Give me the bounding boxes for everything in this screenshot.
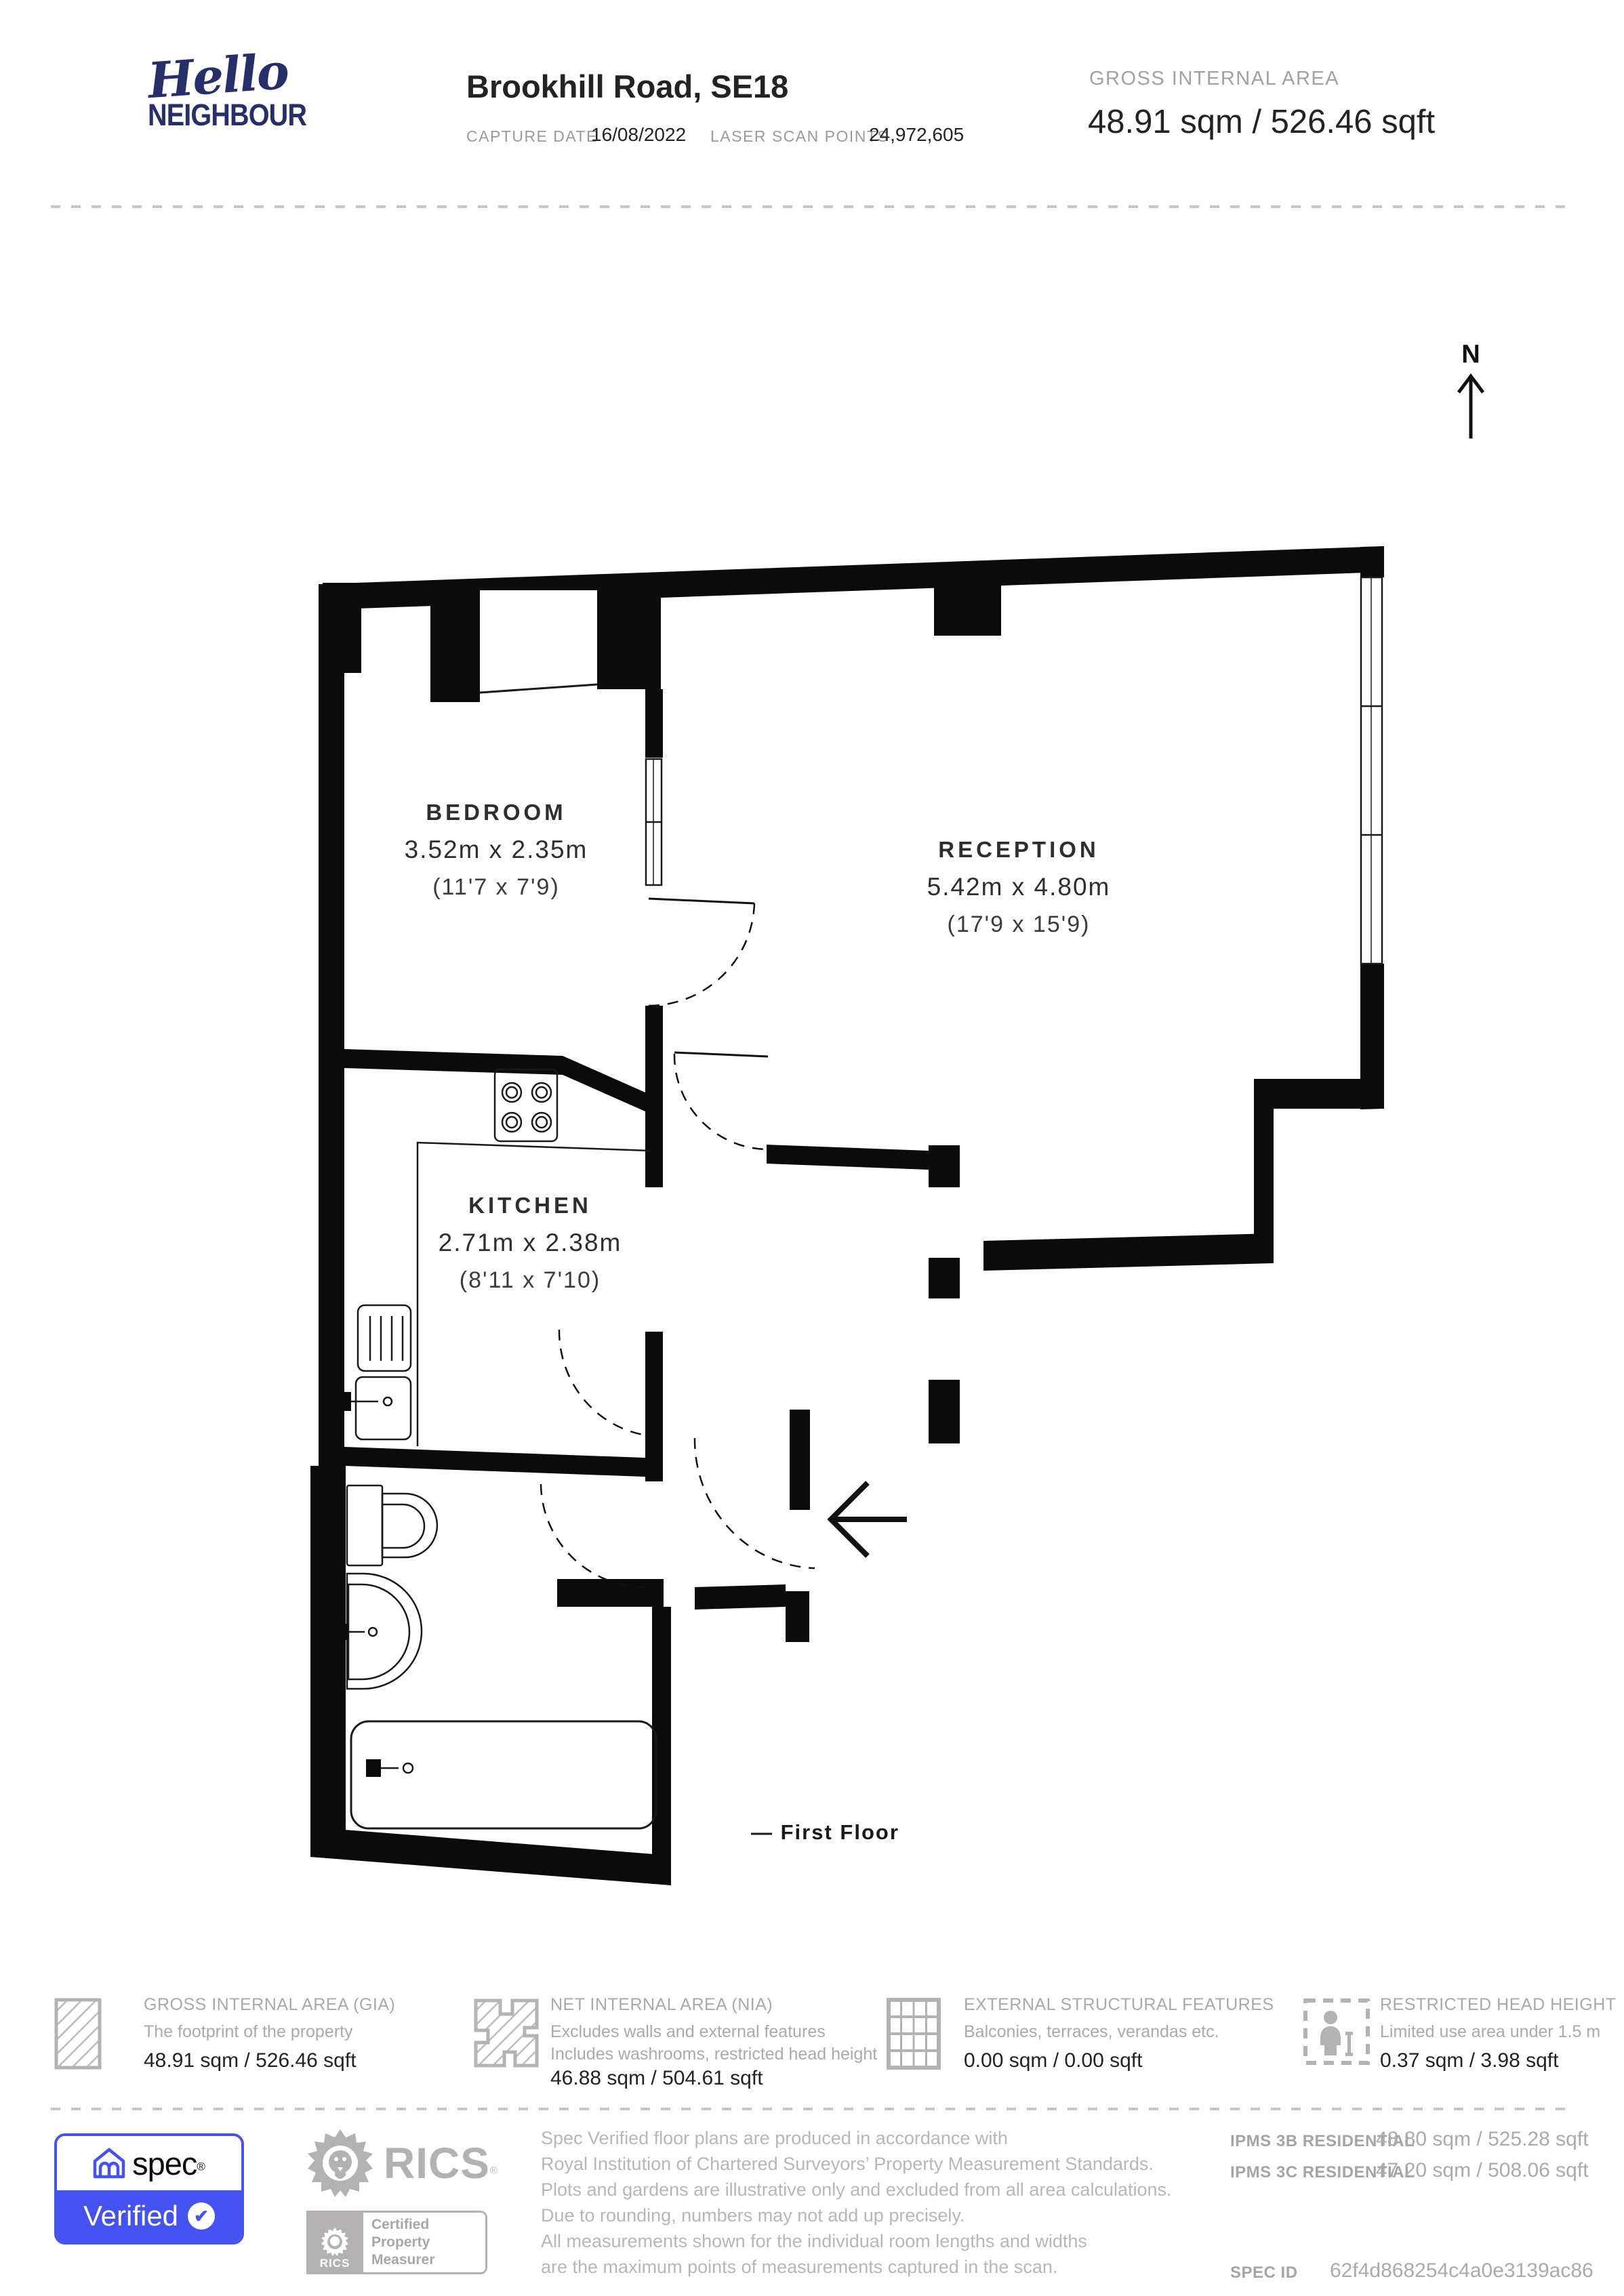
- kitchen-door-arc: [559, 1330, 647, 1435]
- wall-bath-bottom: [310, 1827, 671, 1885]
- bedroom-door-arc: [649, 903, 754, 1006]
- disclaimer-line: Plots and gardens are illustrative only …: [541, 2177, 1172, 2202]
- bedroom-glazed-panel: [643, 758, 665, 886]
- bedroom-imperial: (11'7 x 7'9): [432, 874, 560, 900]
- hob-icon: [495, 1069, 557, 1141]
- rics-certified-line2: Property: [371, 2234, 485, 2251]
- capture-date-label: CAPTURE DATE: [466, 127, 598, 146]
- disclaimer-text: Spec Verified floor plans are produced i…: [541, 2125, 1172, 2280]
- legend-external-title: EXTERNAL STRUCTURAL FEATURES: [964, 1995, 1274, 2015]
- wall-hall-bottom-west: [557, 1579, 664, 1607]
- rics-certified-line3: Measurer: [371, 2251, 485, 2269]
- rics-logo: RICS®: [306, 2128, 498, 2198]
- wall-top: [319, 546, 1384, 610]
- floor-plan: BEDROOM 3.52m x 2.35m (11'7 x 7'9) RECEP…: [291, 501, 1417, 1925]
- disclaimer-line: are the maximum points of measurements c…: [541, 2254, 1172, 2280]
- basin-icon: [333, 1574, 422, 1689]
- reception-door-leaf: [674, 1052, 768, 1057]
- rics-certified-badge: RICS Certified Property Measurer: [306, 2211, 487, 2274]
- disclaimer-line: Royal Institution of Chartered Surveyors…: [541, 2151, 1172, 2177]
- wall-pier-reception: [934, 571, 1001, 636]
- legend-external-value: 0.00 sqm / 0.00 sqft: [964, 2049, 1142, 2072]
- spec-house-icon: [93, 2148, 125, 2179]
- legend-nia-value: 46.88 sqm / 504.61 sqft: [550, 2067, 763, 2090]
- legend-nia-title: NET INTERNAL AREA (NIA): [550, 1995, 773, 2015]
- wall-bath-east: [652, 1607, 671, 1884]
- legend-rhh-desc: Limited use area under 1.5 m: [1380, 2021, 1600, 2043]
- kitchen-metric: 2.71m x 2.38m: [439, 1229, 622, 1256]
- toilet-icon: [347, 1485, 437, 1565]
- brand-logo-neighbour: NEIGHBOUR: [148, 98, 306, 133]
- bedroom-metric: 3.52m x 2.35m: [405, 836, 588, 863]
- footer-divider: [51, 2108, 1575, 2110]
- laser-scan-label: LASER SCAN POINTS: [710, 127, 889, 146]
- laser-scan-value: 24,972,605: [869, 124, 964, 146]
- spec-id-label: SPEC ID: [1230, 2263, 1298, 2282]
- kitchen-imperial: (8'11 x 7'10): [460, 1267, 601, 1293]
- legend-rhh-value: 0.37 sqm / 3.98 sqft: [1380, 2049, 1558, 2072]
- sink-icon: [335, 1377, 411, 1439]
- legend-nia-desc2: Includes washrooms, restricted head heig…: [550, 2043, 877, 2066]
- reception-imperial: (17'9 x 15'9): [948, 911, 1091, 937]
- wall-bath-left: [310, 1466, 346, 1860]
- legend-rhh-title: RESTRICTED HEAD HEIGHT: [1380, 1995, 1617, 2015]
- reception-door-arc: [674, 1054, 768, 1149]
- verified-check-icon: ✔: [188, 2202, 215, 2230]
- reception-metric: 5.42m x 4.80m: [927, 873, 1111, 901]
- legend-gia-desc: The footprint of the property: [144, 2021, 353, 2043]
- kitchen-counter: [418, 1143, 651, 1446]
- rics-brand: RICS: [384, 2139, 490, 2188]
- wall-entrance-corner: [786, 1591, 809, 1642]
- legend-nia-desc1: Excludes walls and external features: [550, 2021, 826, 2043]
- wall-cupboard-3: [929, 1380, 960, 1443]
- spec-verified-badge: spec® Verified ✔: [54, 2133, 244, 2244]
- gia-hatch-icon: [54, 1998, 102, 2070]
- spec-reg-mark: ®: [197, 2160, 205, 2173]
- room-labels: BEDROOM 3.52m x 2.35m (11'7 x 7'9) RECEP…: [405, 800, 1111, 1293]
- spec-verified-label: Verified: [83, 2200, 178, 2232]
- wall-hall-bottom-east: [695, 1584, 786, 1610]
- gross-internal-area-value: 48.91 sqm / 526.46 sqft: [1088, 103, 1435, 141]
- brand-logo-hello: Hello: [146, 47, 329, 102]
- bathtub-icon: [351, 1721, 656, 1828]
- header-divider: [51, 205, 1575, 208]
- entrance-arrow-icon: [831, 1483, 907, 1556]
- bedroom-recess: [361, 610, 430, 674]
- bathroom-door-arc: [541, 1484, 645, 1587]
- legend-gia-title: GROSS INTERNAL AREA (GIA): [144, 1995, 395, 2015]
- disclaimer-line: Spec Verified floor plans are produced i…: [541, 2125, 1172, 2151]
- ipms-3b-value: 48.80 sqm / 525.28 sqft: [1376, 2128, 1589, 2151]
- reception-label: RECEPTION: [938, 837, 1099, 862]
- wall-pier-a: [430, 601, 480, 702]
- bedroom-label: BEDROOM: [426, 800, 566, 825]
- bedroom-alcove: [480, 590, 597, 694]
- capture-date-value: 16/08/2022: [591, 124, 686, 146]
- wall-hall-north: [767, 1145, 929, 1170]
- nia-hatch-icon: [473, 1998, 540, 2068]
- rics-certified-line1: Certified: [371, 2216, 485, 2234]
- gross-internal-area-label: GROSS INTERNAL AREA: [1089, 68, 1339, 90]
- rics-reg-mark: ®: [490, 2165, 498, 2177]
- spec-id-value: 62f4d868254c4a0e3139ac86: [1330, 2259, 1593, 2282]
- north-arrow-label: N: [1461, 340, 1480, 369]
- disclaimer-line: Due to rounding, numbers may not add up …: [541, 2202, 1172, 2228]
- wall-kitchen-bath-divider: [344, 1447, 663, 1477]
- spec-brand: spec: [132, 2146, 197, 2181]
- page-title: Brookhill Road, SE18: [466, 68, 788, 105]
- restricted-height-icon: [1303, 1998, 1371, 2066]
- kitchen-label: KITCHEN: [468, 1193, 592, 1218]
- wall-cupboard-1: [929, 1145, 960, 1187]
- door-leaves: [649, 899, 768, 1057]
- ipms-3c-value: 47.20 sqm / 508.06 sqft: [1376, 2159, 1589, 2182]
- wall-cupboard-2: [929, 1258, 960, 1298]
- north-arrow: N: [1442, 335, 1499, 451]
- disclaimer-line: All measurements shown for the individua…: [541, 2228, 1172, 2254]
- rics-certified-brand: RICS: [320, 2257, 350, 2270]
- wall-left: [319, 584, 344, 1466]
- rics-certified-lion-icon: [321, 2227, 349, 2257]
- external-grid-icon: [887, 1998, 941, 2070]
- floor-caption: — First Floor: [751, 1820, 899, 1845]
- brand-logo: Hello NEIGHBOUR: [148, 53, 328, 133]
- bedroom-door-leaf: [649, 899, 754, 903]
- wall-reception-south: [983, 1233, 1274, 1271]
- rics-lion-icon: [306, 2128, 374, 2198]
- wall-pier-b: [597, 593, 661, 689]
- wall-partition-stub: [645, 1006, 663, 1187]
- legend-gia-value: 48.91 sqm / 526.46 sqft: [144, 2049, 357, 2072]
- wall-step-band: [1254, 1079, 1384, 1109]
- wall-partition-top: [645, 689, 663, 759]
- legend-external-desc: Balconies, terraces, verandas etc.: [964, 2021, 1219, 2043]
- wall-hall-east: [790, 1410, 810, 1510]
- drainer-icon: [358, 1305, 411, 1371]
- reception-window: [1359, 577, 1385, 964]
